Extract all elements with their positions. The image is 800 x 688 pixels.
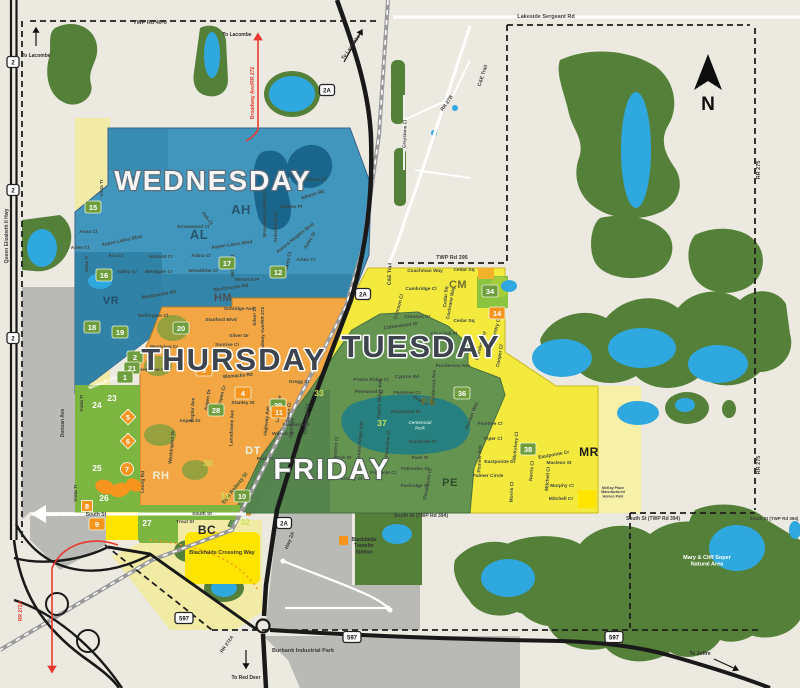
marker-label-9: 9 — [95, 520, 99, 529]
road-label: South St (TWP Rd 394) — [394, 513, 448, 519]
street-label: Cedar Sq — [453, 318, 474, 324]
marker-label-12: 12 — [274, 268, 282, 277]
street-label: Wellington Cl — [138, 313, 169, 319]
day-label-wednesday: WEDNESDAY — [114, 165, 311, 196]
day-label-friday: FRIDAY — [273, 454, 390, 486]
area-code-pe: PE — [442, 477, 458, 489]
street-label: Aztec Cr — [296, 257, 316, 263]
road-label: South St — [46, 512, 67, 518]
marker-label-27: 27 — [142, 518, 152, 528]
highway-shield-label-2A: 2A — [323, 88, 331, 94]
street-label: Leung Rd — [140, 471, 147, 493]
marker-label-34: 34 — [486, 287, 495, 296]
marker-label-37: 37 — [377, 418, 387, 428]
compass-n-label: N — [701, 94, 715, 115]
street-label: Trout St — [176, 519, 195, 525]
marker-label-28: 28 — [212, 406, 220, 415]
map-canvas: Vista TrAnna ClArlen ClAspen Lakes BlvdA… — [0, 0, 800, 688]
road-label: Greystone Cl — [402, 120, 408, 148]
road-label: Duncan Ave — [60, 409, 66, 438]
marker-label-30: 30 — [203, 458, 213, 468]
area-code-hm: HM — [214, 292, 232, 304]
street-label: Westgate Cr — [145, 269, 173, 275]
street-label: Silver Dr — [229, 333, 249, 339]
marker-label-7: 7 — [125, 465, 129, 474]
direction-label: To Joffre — [689, 651, 710, 657]
street-label: Alderwood Cl — [273, 212, 279, 243]
street-label: Valley Cr — [117, 269, 137, 275]
day-label-tuesday: TUESDAY — [341, 329, 500, 364]
direction-label: To Lacombe — [222, 32, 251, 38]
street-label: Palisades St — [401, 466, 430, 472]
street-label: Panorama Dr — [391, 409, 421, 415]
street-label: Vista Tr — [99, 179, 105, 196]
road-label: C&E Trail — [387, 262, 394, 285]
street-label: Ava Cr — [108, 253, 123, 259]
marker-label-36: 36 — [458, 389, 466, 398]
street-label: Coachman Way — [407, 268, 443, 274]
area-code-dt: DT — [245, 445, 261, 457]
street-label: Pondside Cr — [409, 439, 437, 445]
street-label: Gregg St — [289, 379, 310, 385]
marker-label-33: 33 — [314, 388, 324, 398]
area-code-bc: BC — [198, 523, 216, 537]
street-label: Athens Pl — [280, 204, 302, 210]
street-label: Cedar Sq — [453, 267, 474, 273]
area-code-cm: CM — [449, 279, 467, 291]
marker-label-17: 17 — [223, 259, 231, 268]
marker-label-10: 10 — [238, 492, 246, 501]
road-label: Lakeside Sergeant Rd — [517, 14, 574, 20]
mckay-place-label: Homes Park — [603, 494, 624, 498]
street-label: Murphy Cl — [550, 483, 573, 489]
street-label: Pinewood Cl — [355, 389, 384, 395]
day-label-thursday: THURSDAY — [141, 342, 326, 377]
highway-shield-label-2A: 2A — [359, 292, 367, 298]
street-label: Arlen Cl — [71, 245, 89, 251]
street-label: Stanley St — [231, 400, 255, 406]
area-code-vr: VR — [103, 295, 119, 307]
street-label: Pioneer Ave — [477, 445, 484, 473]
road-label: RR 272A — [18, 600, 24, 621]
burbank-industrial-park-label: Burbank Industrial Park — [272, 648, 335, 654]
road-label: TWP Rd 395 — [436, 255, 468, 261]
road-label: South St — [192, 511, 212, 517]
marker-label-25: 25 — [92, 463, 102, 473]
road-label: South St (TWP Rd 394) — [750, 516, 799, 521]
highway-shield-label-597: 597 — [179, 616, 190, 622]
road-label: South St (TWP Rd 394) — [626, 516, 680, 522]
marker-label-18: 18 — [88, 323, 96, 332]
burbank-gray — [263, 636, 520, 688]
road-label: Vista Tr — [73, 484, 79, 501]
street-label: Eastpointe Dr — [484, 459, 515, 465]
road-label: Vista Tr — [79, 394, 85, 411]
marker-label-1: 1 — [123, 373, 127, 382]
marker-label-31: 31 — [220, 491, 230, 501]
road-label: RR 275 — [756, 161, 762, 180]
marker-label-14: 14 — [493, 309, 502, 318]
street-label: Vista Tr — [84, 255, 90, 272]
road-label: TWP Rd 40-0 — [133, 20, 167, 26]
area-code-rh: RH — [153, 470, 170, 482]
street-label: Adina Cl — [191, 253, 210, 259]
road-label: South St — [86, 512, 107, 518]
street-label: Pinetree Cl — [477, 421, 502, 427]
highway-shield-label-597: 597 — [347, 635, 358, 641]
area-code-pe: PE — [421, 396, 437, 408]
road-label: Queen Elizabeth II Hwy — [4, 208, 10, 263]
marker-label-26: 26 — [99, 493, 109, 503]
marker-label-23: 23 — [107, 393, 117, 403]
area-code-mr: MR — [579, 445, 599, 459]
marker-label-38: 38 — [524, 445, 532, 454]
street-label: Almond Cr — [149, 254, 174, 260]
blackfalds-transfer-station-label: Transfer — [354, 543, 374, 549]
street-label: Plumtree Cr — [393, 390, 420, 396]
street-label: Poplar Ave — [190, 397, 197, 422]
street-label: Anna Cl — [79, 229, 97, 235]
street-label: Maclean St — [546, 460, 571, 466]
marker-label-15: 15 — [89, 203, 97, 212]
street-label: Park St — [412, 455, 429, 461]
marker-label-8: 8 — [85, 502, 89, 511]
centennial-park-label: Centennial — [408, 420, 432, 425]
marker-label-24: 24 — [92, 400, 102, 410]
direction-label: To Lacombe — [21, 53, 50, 59]
centennial-park-label: Park — [415, 426, 425, 431]
marker-label-32: 32 — [240, 517, 250, 527]
street-label: Stanford Blvd — [205, 317, 237, 323]
marker-label-11: 11 — [275, 408, 283, 417]
road-label: RR 275 — [756, 456, 762, 475]
highway-shield-label-597: 597 — [609, 635, 620, 641]
mary-cliff-soper-natural-area-label: Mary & Cliff Soper — [683, 555, 732, 561]
blackfalds-transfer-station-swatch — [339, 536, 348, 545]
street-label: Palmer Circle — [473, 473, 504, 479]
street-label: Mitchell Cr — [549, 496, 574, 502]
road-label: Broadway Ave/RR 272 — [250, 67, 256, 120]
mary-cliff-soper-natural-area-label: Natural Area — [691, 562, 724, 568]
marker-label-19: 19 — [116, 328, 124, 337]
area-code-al: AL — [190, 227, 208, 242]
blackfalds-crossing-way-label: Blackfalds Crossing Way — [189, 550, 255, 556]
blackfalds-transfer-station-label: Blackfalds — [351, 537, 376, 543]
street-label: Cyprus Rd — [395, 374, 419, 380]
highway-shield-label-2A: 2A — [280, 521, 288, 527]
street-label: Silver Dr — [252, 306, 258, 326]
marker-label-20: 20 — [177, 324, 185, 333]
street-label: Winston Pl — [235, 277, 260, 283]
direction-label: To Red Deer — [231, 675, 260, 681]
street-label: Cambridge Cl — [405, 286, 436, 292]
blackfalds-collection-day-map: Vista TrAnna ClArlen ClAspen Lakes BlvdA… — [0, 0, 800, 688]
street-label: Crimson Cl — [404, 314, 430, 320]
blackfalds-transfer-station-label: Station — [356, 549, 373, 555]
street-label: Piper Cl — [484, 436, 502, 442]
marker-label-6: 6 — [126, 437, 130, 446]
area-code-ah: AH — [231, 202, 251, 217]
marker-label-2: 2 — [133, 353, 137, 362]
street-label: Sunridge Ave — [224, 306, 255, 312]
marker-label-5: 5 — [126, 413, 130, 422]
street-label: Morris Cl — [509, 481, 516, 502]
marker-label-16: 16 — [100, 271, 108, 280]
street-label: Woodbine Cl — [188, 268, 217, 274]
